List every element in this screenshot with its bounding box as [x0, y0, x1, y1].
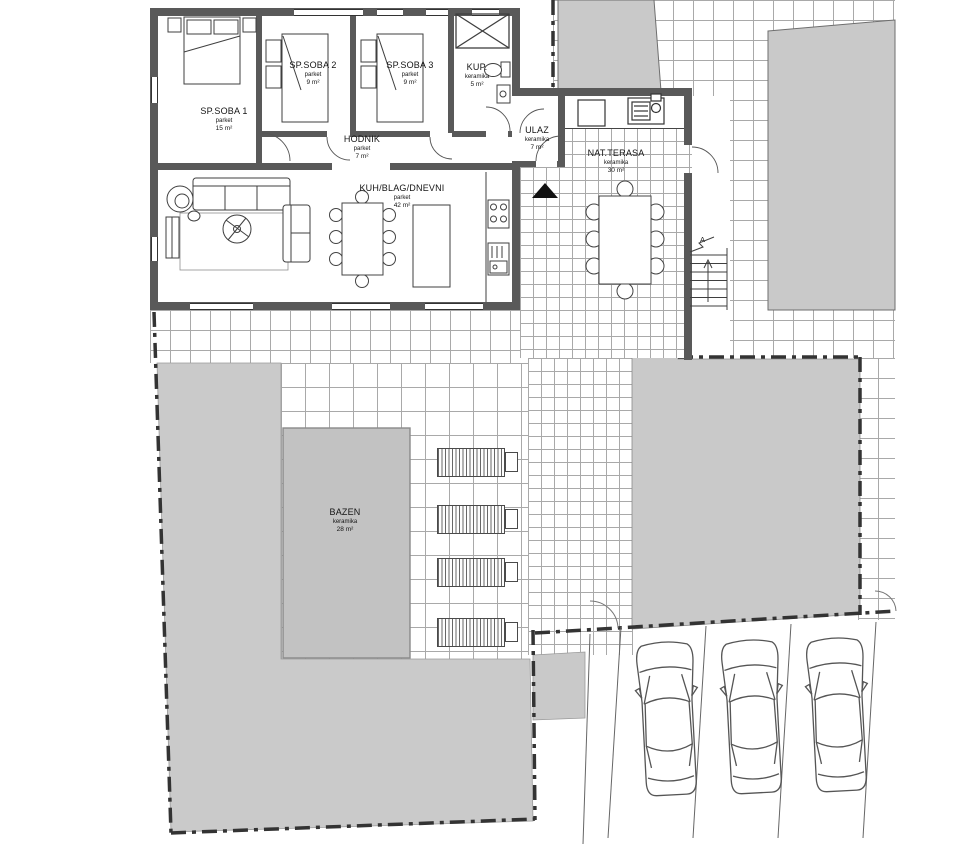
gate-swing-arcs: [590, 591, 896, 628]
vestibule-door-opening: [536, 161, 557, 167]
neighbor-parcel-middle: [632, 312, 860, 629]
sliding-door-south-1: [332, 303, 390, 310]
window-kup: [472, 9, 499, 16]
wall-living-1: [158, 163, 332, 170]
tiles-below-house: [150, 310, 553, 363]
lounger-side-table-2: [505, 509, 518, 529]
lounger-side-table-4: [505, 622, 518, 642]
window-living-south: [190, 303, 253, 310]
wall-hodnik-4: [508, 131, 512, 137]
car-3: [803, 636, 873, 792]
room-label-sp-soba-1: SP.SOBA 1 parket 15 m²: [200, 106, 247, 134]
tiles-mid-strip: [528, 358, 633, 655]
house-outline: [150, 8, 520, 310]
terrace-top-wall: [558, 88, 692, 96]
parking-divider-lines: [583, 622, 876, 844]
house-to-vestibule-opening: [512, 105, 520, 135]
window-soba3-b: [426, 9, 448, 16]
room-label-kup: KUP. keramika 5 m²: [465, 62, 489, 90]
sliding-door-south-2: [425, 303, 483, 310]
sun-lounger-2: [437, 505, 505, 534]
sun-lounger-4: [437, 618, 505, 647]
window-soba1-left: [151, 77, 158, 103]
room-label-sp-soba-3: SP.SOBA 3 parket 9 m²: [386, 60, 433, 88]
wall-hodnik-3: [452, 131, 486, 137]
window-living-left: [151, 237, 158, 261]
tiles-right-strip: [858, 358, 895, 620]
wall-soba2-soba3: [350, 16, 356, 133]
terrace-right-wall-lower: [684, 173, 692, 360]
room-label-nat-terasa: NAT.TERASA keramika 30 m²: [588, 148, 645, 176]
terrace-counter: [565, 96, 692, 129]
window-soba2: [294, 9, 363, 16]
room-label-bazen: BAZEN keramika 28 m²: [329, 507, 360, 535]
car-2: [718, 638, 788, 794]
parked-cars: [633, 636, 873, 796]
window-soba3-a: [377, 9, 403, 16]
wall-soba3-kup: [448, 16, 454, 133]
floor-plan-canvas: A SP.SOBA 1 parket 15 m² SP.SOBA 2 park: [0, 0, 960, 844]
terrace-right-wall-upper: [684, 96, 692, 145]
lounger-side-table-1: [505, 452, 518, 472]
stair-corridor: [692, 96, 730, 358]
car-1: [633, 640, 703, 796]
sun-lounger-1: [437, 448, 505, 477]
room-label-ulaz: ULAZ keramika 7 m²: [525, 125, 549, 153]
wall-living-2: [390, 163, 512, 170]
wall-hodnik-1: [262, 131, 327, 137]
sun-lounger-3: [437, 558, 505, 587]
room-label-sp-soba-2: SP.SOBA 2 parket 9 m²: [289, 60, 336, 88]
wall-soba1-soba2: [256, 16, 262, 169]
lounger-side-table-3: [505, 562, 518, 582]
room-label-kuh-blag-dnevni: KUH/BLAG/DNEVNI parket 42 m²: [359, 183, 444, 211]
room-label-hodnik: HODNIK parket 7 m²: [344, 134, 380, 162]
